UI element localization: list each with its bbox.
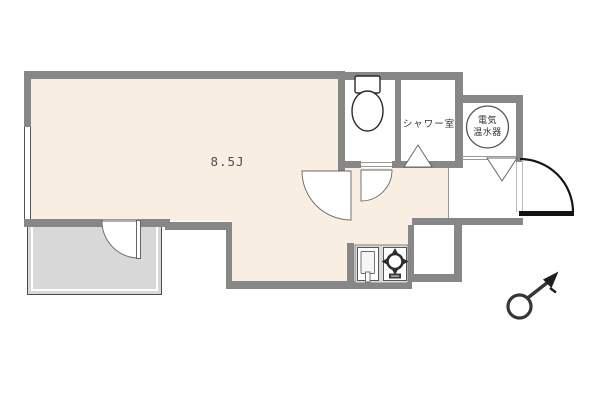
shower-door-fold-icon [404,145,432,167]
toilet-bowl-icon [352,91,383,131]
toilet-door-arc [361,170,392,201]
sink-basin-icon [361,252,375,274]
compass-icon [508,272,559,319]
floor-plan: 8.5J シャワー室 電気 温水器 [0,0,600,400]
water-heater-label-line2: 温水器 [465,126,510,138]
sink-tap-icon [366,272,371,282]
closet-door-fold-icon [487,158,517,181]
entrance-door-leaf [519,211,574,216]
main-room-door-arc [302,171,351,220]
balcony-door-leaf [137,221,141,259]
fixtures-layer [0,0,600,400]
balcony-door-arc [102,221,139,258]
water-heater-label: 電気 温水器 [465,114,510,138]
shower-room-label: シャワー室 [400,116,458,130]
main-room-size-label: 8.5J [205,154,250,169]
entrance-door-arc [520,159,573,212]
water-heater-label-line1: 電気 [465,114,510,126]
stove-grill-slot [391,276,399,277]
